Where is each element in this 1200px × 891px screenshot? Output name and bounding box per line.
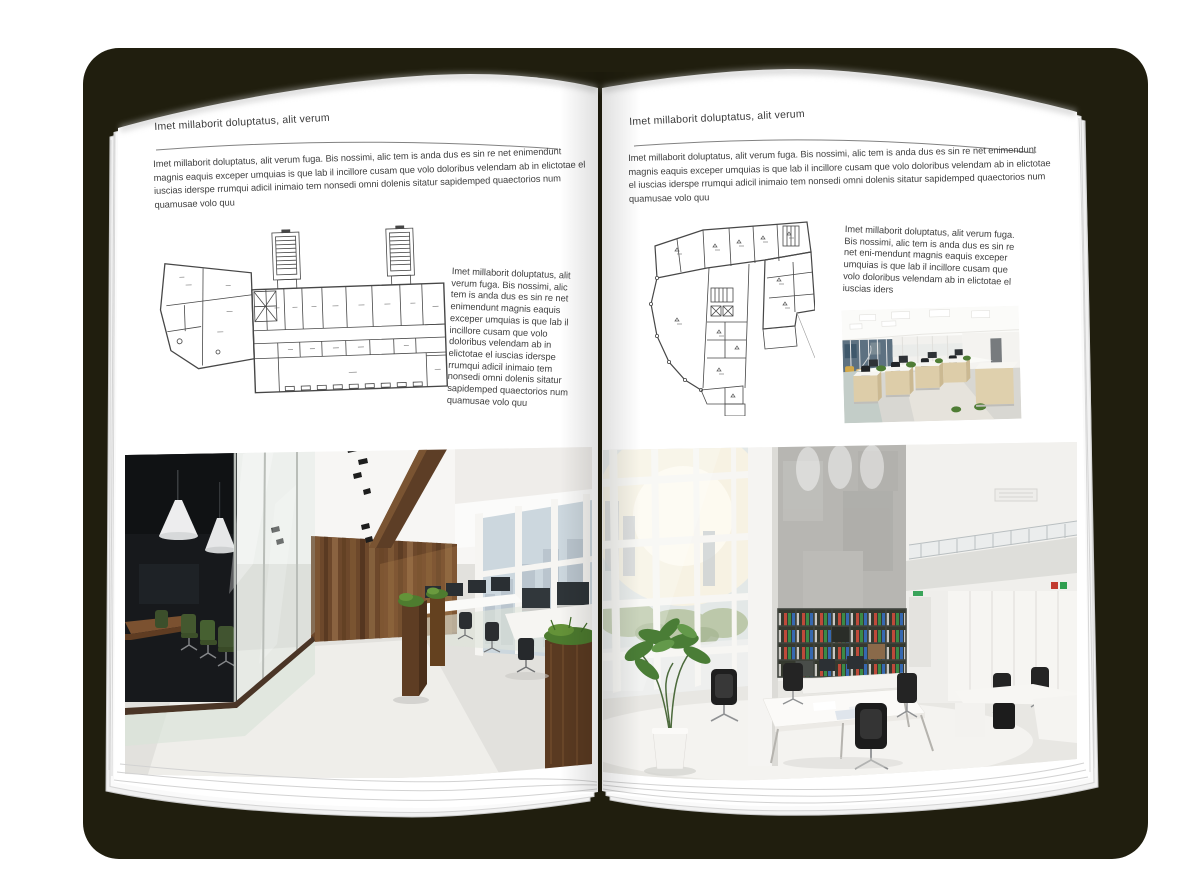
loft-office-photo [125, 444, 592, 784]
magazine-spread-mockup: Imet millaborit doluptatus, alit verum I… [0, 0, 1200, 891]
atrium-office-photo [603, 441, 1077, 781]
left-page-header: Imet millaborit doluptatus, alit verum [154, 112, 330, 133]
right-page-intro-paragraph: Imet millaborit doluptatus, alit verum f… [628, 143, 1057, 206]
workstations-photo [842, 306, 1022, 424]
left-page-side-column: Imet millaborit doluptatus, alit verum f… [447, 266, 586, 411]
floor-plan-right [647, 218, 815, 416]
right-page-side-column: Imet millaborit doluptatus, alit verum f… [843, 224, 1027, 301]
right-page-header: Imet millaborit doluptatus, alit verum [629, 108, 805, 128]
left-page-intro-paragraph: Imet millaborit doluptatus, alit verum f… [153, 144, 586, 212]
floor-plan-left [154, 224, 452, 420]
